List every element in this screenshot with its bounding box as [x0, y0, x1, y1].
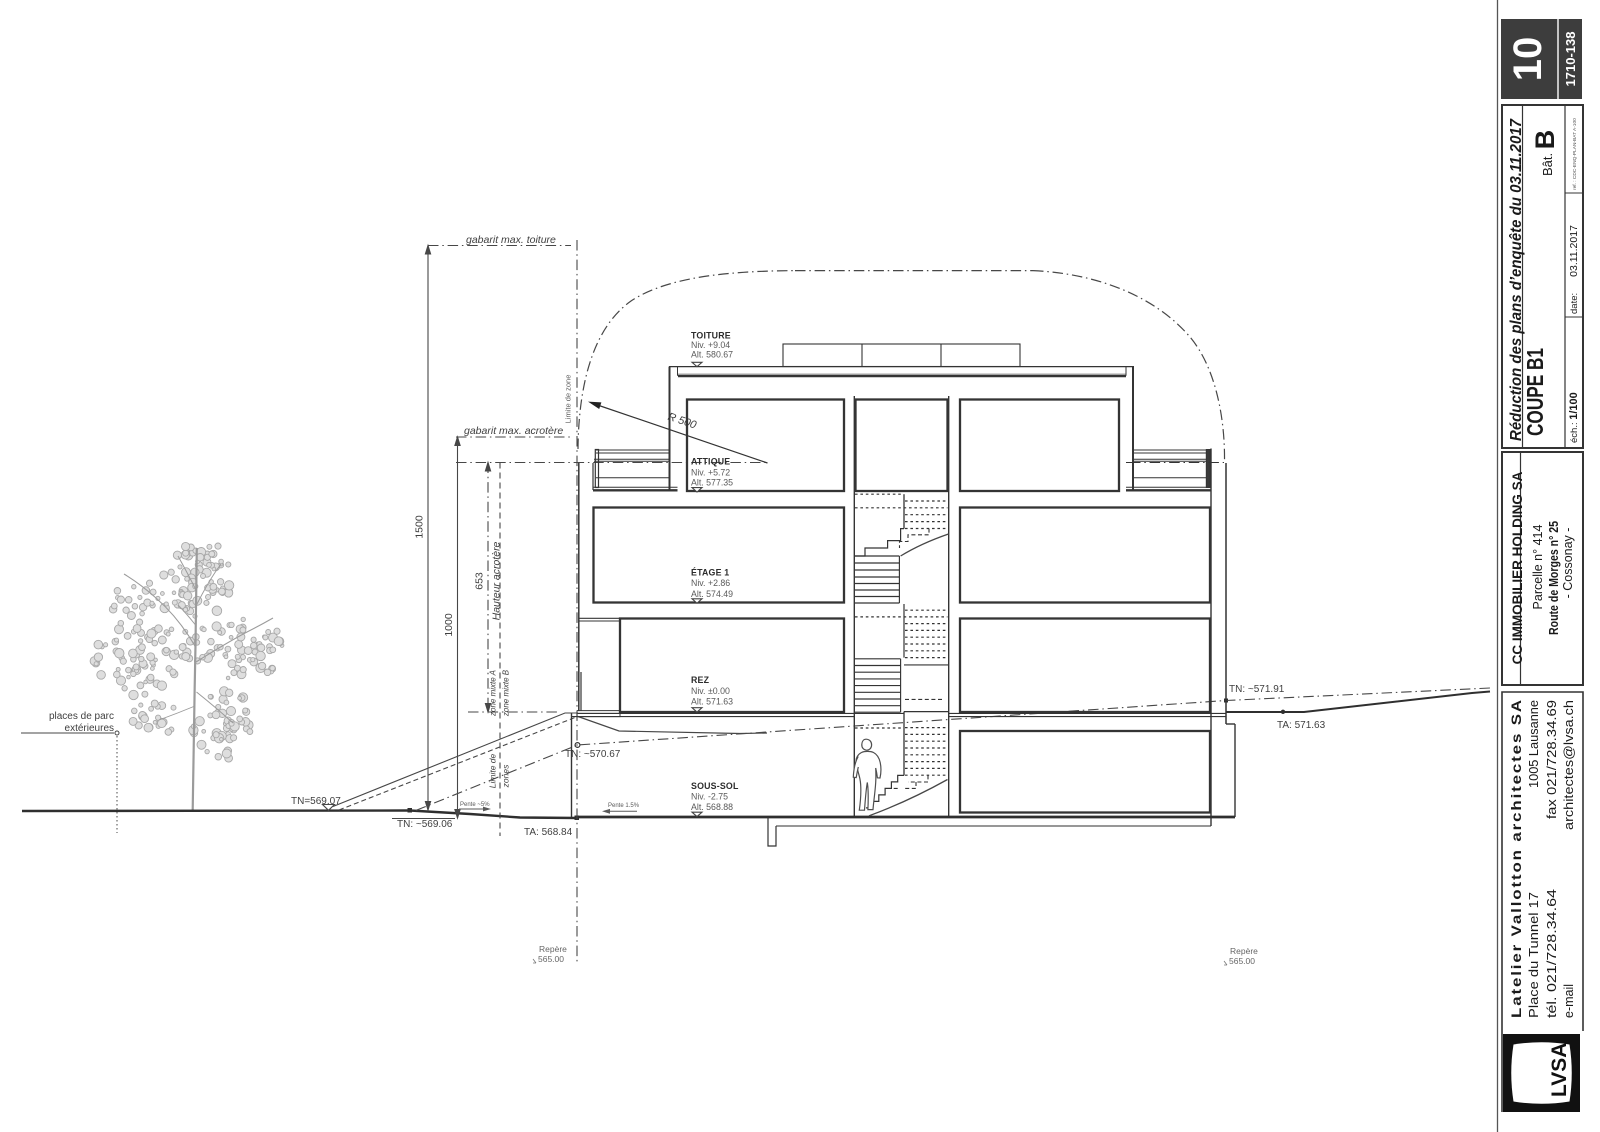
svg-text:Niv. +2.86: Niv. +2.86 [691, 578, 730, 588]
svg-text:architectes@lvsa.ch: architectes@lvsa.ch [1562, 700, 1576, 830]
svg-text:gabarit max. toiture: gabarit max. toiture [466, 234, 556, 246]
svg-text:TN: ~570.67: TN: ~570.67 [565, 749, 621, 760]
svg-text:Alt. 577.35: Alt. 577.35 [691, 478, 733, 488]
svg-text:Repère: Repère [539, 944, 567, 954]
svg-text:Parcelle n° 414: Parcelle n° 414 [1531, 525, 1545, 610]
svg-text:SOUS-SOL: SOUS-SOL [691, 781, 739, 791]
svg-text:Alt. 571.63: Alt. 571.63 [691, 697, 733, 707]
svg-text:COUPE B1: COUPE B1 [1522, 348, 1548, 436]
svg-text:565.00: 565.00 [1229, 956, 1255, 966]
svg-text:ref. : CDC-ENQ-PLAN-BAT A-100: ref. : CDC-ENQ-PLAN-BAT A-100 [1572, 118, 1578, 190]
svg-text:zone mixte B: zone mixte B [502, 669, 511, 717]
svg-text:Pente ~5%: Pente ~5% [460, 802, 490, 808]
svg-text:e-mail: e-mail [1562, 984, 1576, 1018]
svg-text:zones: zones [501, 764, 511, 788]
svg-text:TA: 571.63: TA: 571.63 [1277, 720, 1326, 731]
svg-text:extérieures: extérieures [65, 723, 114, 734]
svg-text:ATTIQUE: ATTIQUE [691, 457, 730, 467]
svg-text:places de parc: places de parc [49, 711, 114, 722]
svg-text:653: 653 [474, 572, 486, 590]
svg-text:Alt. 568.88: Alt. 568.88 [691, 802, 733, 812]
svg-text:TN: ~569.06: TN: ~569.06 [397, 819, 453, 830]
svg-text:Alt. 574.49: Alt. 574.49 [691, 589, 733, 599]
svg-text:565.00: 565.00 [538, 954, 564, 964]
svg-text:Place du Tunnel 17: Place du Tunnel 17 [1527, 892, 1541, 1018]
svg-text:Alt. 580.67: Alt. 580.67 [691, 350, 733, 360]
svg-text:TN: ~571.91: TN: ~571.91 [1229, 684, 1285, 695]
svg-text:Route de Morges n° 25: Route de Morges n° 25 [1547, 521, 1561, 635]
svg-text:- Cossonay -: - Cossonay - [1561, 528, 1575, 599]
svg-text:ÉTAGE 1: ÉTAGE 1 [691, 568, 729, 578]
svg-text:éch.: 1/100: éch.: 1/100 [1568, 392, 1580, 443]
svg-text:Hauteur acrotère: Hauteur acrotère [491, 541, 503, 620]
svg-text:Niv. -2.75: Niv. -2.75 [691, 792, 728, 802]
svg-text:Niv. ±0.00: Niv. ±0.00 [691, 686, 730, 696]
svg-text:10: 10 [1506, 37, 1550, 82]
svg-text:CC IMMOBILIER HOLDING SA: CC IMMOBILIER HOLDING SA [1510, 471, 1525, 664]
svg-text:Pente 1.5%: Pente 1.5% [608, 803, 640, 809]
svg-text:TA: 568.84: TA: 568.84 [524, 827, 573, 838]
svg-text:1500: 1500 [414, 515, 426, 539]
svg-text:Niv. +5.72: Niv. +5.72 [691, 468, 730, 478]
svg-text:Latelier Vallotton architectes: Latelier Vallotton architectes SA [1509, 698, 1524, 1018]
svg-text:1000: 1000 [443, 613, 455, 637]
svg-text:1005 Lausanne: 1005 Lausanne [1527, 700, 1541, 788]
svg-text:tél. 021/728.34.64: tél. 021/728.34.64 [1545, 889, 1559, 1018]
svg-text:1710-138: 1710-138 [1563, 32, 1578, 87]
svg-text:fax 021/728.34.69: fax 021/728.34.69 [1545, 700, 1559, 819]
svg-text:gabarit max. acrotère: gabarit max. acrotère [464, 425, 563, 437]
svg-text:LVSA: LVSA [1548, 1043, 1571, 1097]
svg-text:TOITURE: TOITURE [691, 331, 731, 341]
svg-text:Limite de zone: Limite de zone [564, 375, 573, 424]
svg-text:zone mixte A: zone mixte A [489, 670, 498, 717]
svg-text:Niv. +9.04: Niv. +9.04 [691, 340, 730, 350]
svg-text:Repère: Repère [1230, 946, 1258, 956]
svg-text:Limite de: Limite de [488, 753, 498, 788]
svg-text:REZ: REZ [691, 675, 710, 685]
svg-text:date:03.11.2017: date:03.11.2017 [1568, 225, 1580, 314]
